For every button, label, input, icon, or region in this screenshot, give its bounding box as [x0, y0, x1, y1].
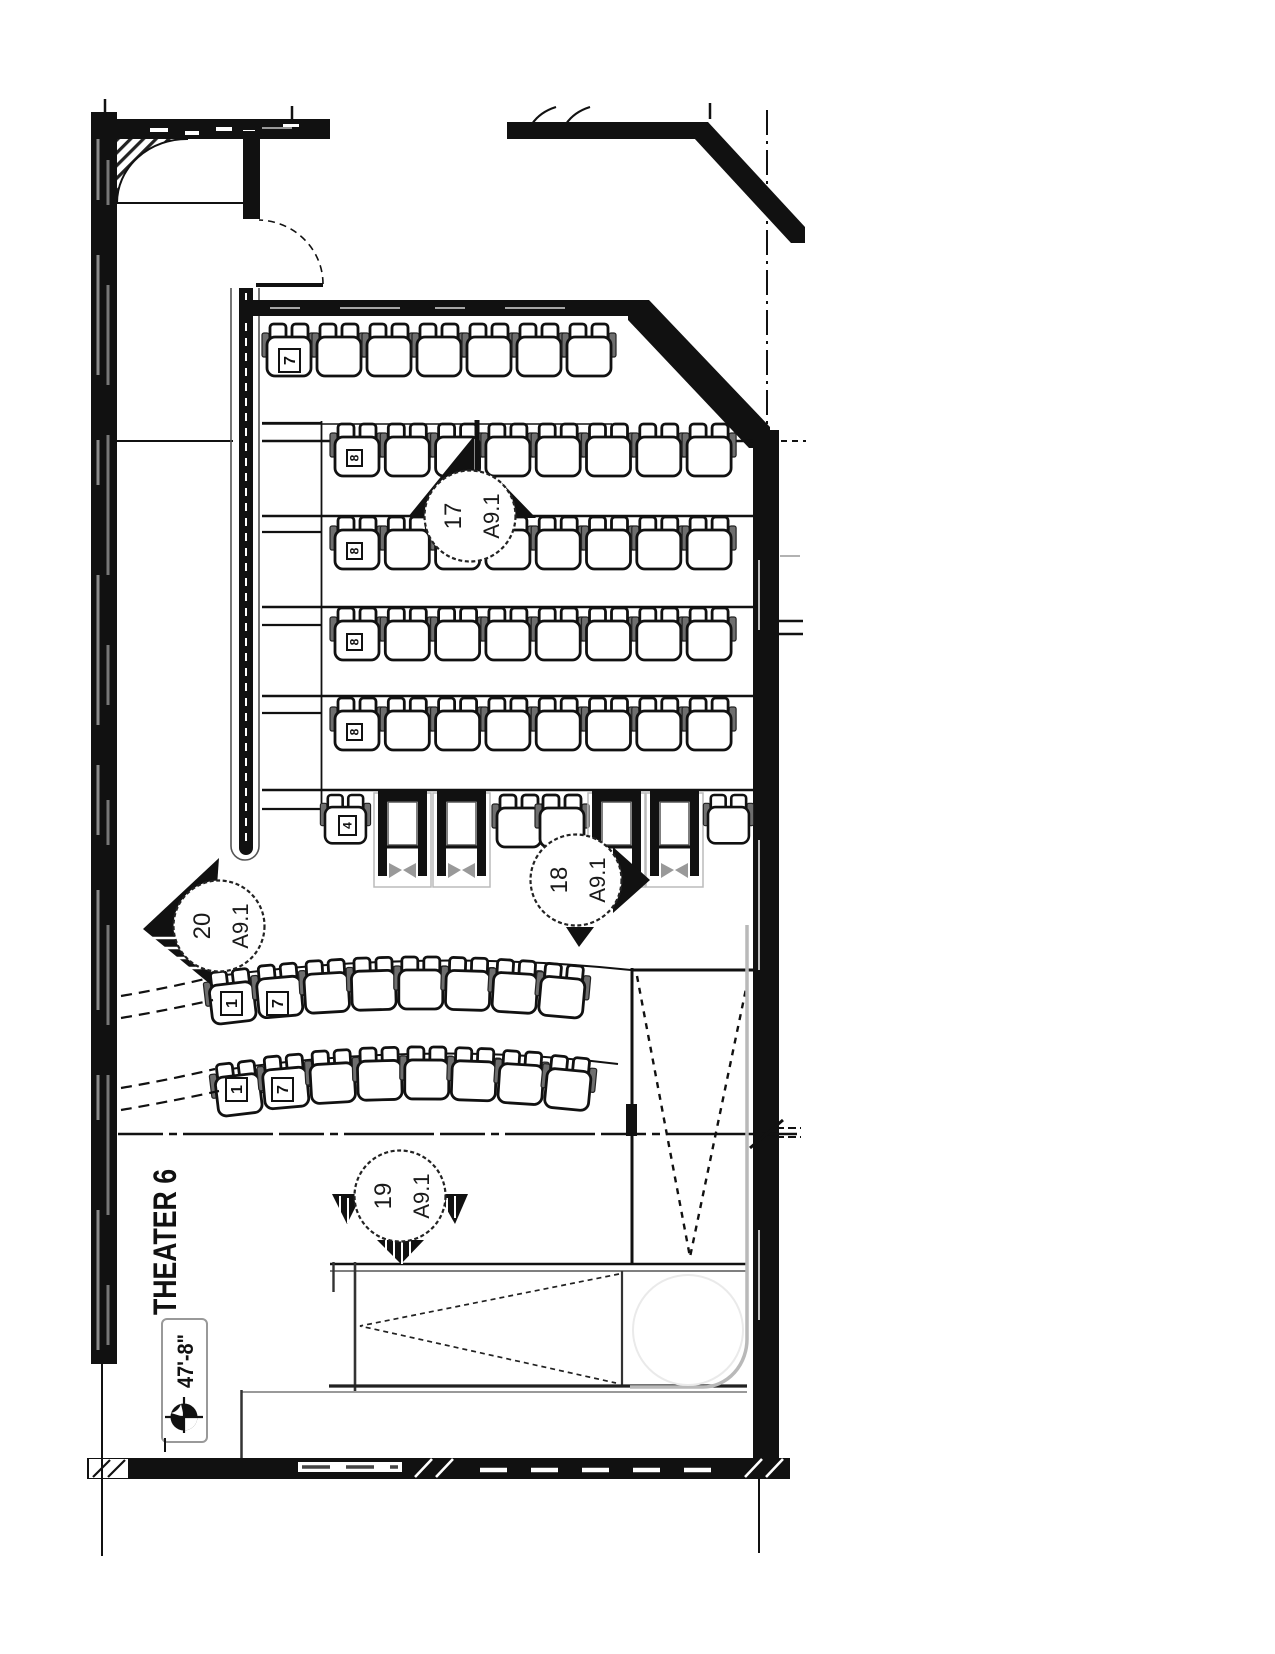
svg-text:7: 7 [275, 1085, 292, 1094]
svg-text:A9.1: A9.1 [585, 857, 610, 902]
svg-text:8: 8 [348, 454, 362, 461]
svg-text:4: 4 [341, 822, 355, 829]
svg-text:1: 1 [224, 999, 241, 1008]
svg-text:7: 7 [270, 999, 287, 1008]
svg-text:THEATER 6: THEATER 6 [147, 1169, 183, 1315]
svg-text:A9.1: A9.1 [228, 903, 253, 948]
svg-text:19: 19 [370, 1183, 397, 1210]
svg-text:17: 17 [440, 503, 467, 530]
svg-text:A9.1: A9.1 [479, 493, 504, 538]
svg-text:8: 8 [348, 728, 362, 735]
svg-text:A9.1: A9.1 [409, 1173, 434, 1218]
svg-text:1: 1 [229, 1085, 246, 1094]
svg-text:20: 20 [189, 913, 216, 940]
svg-text:7: 7 [282, 356, 299, 365]
svg-text:18: 18 [546, 867, 573, 894]
svg-text:8: 8 [348, 638, 362, 645]
svg-text:47'-8": 47'-8" [173, 1334, 198, 1388]
svg-text:8: 8 [348, 547, 362, 554]
